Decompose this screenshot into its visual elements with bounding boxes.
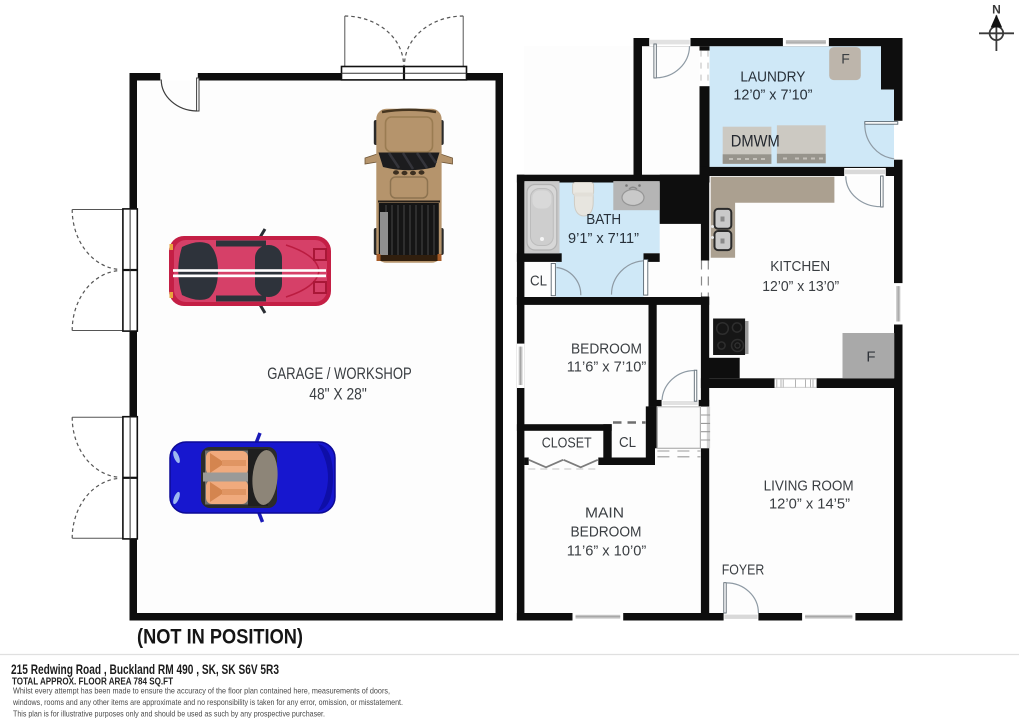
svg-text:N: N xyxy=(992,3,1001,17)
svg-text:215 Redwing Road , Buckland RM: 215 Redwing Road , Buckland RM 490 , SK,… xyxy=(11,661,279,677)
svg-text:MAIN: MAIN xyxy=(585,505,624,522)
svg-text:11’6” x 10’0”: 11’6” x 10’0” xyxy=(567,543,647,560)
svg-text:48" X 28": 48" X 28" xyxy=(309,385,367,404)
svg-text:12’0” x 13’0”: 12’0” x 13’0” xyxy=(762,278,839,295)
svg-text:BEDROOM: BEDROOM xyxy=(571,524,642,541)
svg-text:F: F xyxy=(841,51,850,67)
svg-text:BEDROOM: BEDROOM xyxy=(571,341,642,358)
svg-text:windows, rooms and any other i: windows, rooms and any other items are a… xyxy=(12,698,403,707)
svg-text:FOYER: FOYER xyxy=(722,562,765,579)
svg-text:Whilst every attempt has been: Whilst every attempt has been made to en… xyxy=(13,687,390,696)
svg-text:KITCHEN: KITCHEN xyxy=(770,258,830,275)
svg-text:LAUNDRY: LAUNDRY xyxy=(740,68,805,85)
svg-text:12’0” x 14’5”: 12’0” x 14’5” xyxy=(769,496,850,513)
svg-text:(NOT IN POSITION): (NOT IN POSITION) xyxy=(137,625,303,649)
svg-text:F: F xyxy=(866,349,875,366)
svg-text:CL: CL xyxy=(530,273,547,290)
svg-text:9’1” x 7’11”: 9’1” x 7’11” xyxy=(568,230,639,247)
svg-text:12’0” x 7’10”: 12’0” x 7’10” xyxy=(733,87,812,104)
svg-text:CL: CL xyxy=(619,434,636,451)
svg-text:11’6” x 7’10”: 11’6” x 7’10” xyxy=(567,359,647,376)
svg-text:CLOSET: CLOSET xyxy=(542,435,592,452)
svg-text:BATH: BATH xyxy=(586,211,621,228)
svg-text:LIVING ROOM: LIVING ROOM xyxy=(764,478,854,495)
svg-text:This plan is for illustrative: This plan is for illustrative purposes o… xyxy=(13,710,325,719)
svg-text:DMWM: DMWM xyxy=(731,133,780,151)
svg-text:GARAGE / WORKSHOP: GARAGE / WORKSHOP xyxy=(267,364,412,383)
